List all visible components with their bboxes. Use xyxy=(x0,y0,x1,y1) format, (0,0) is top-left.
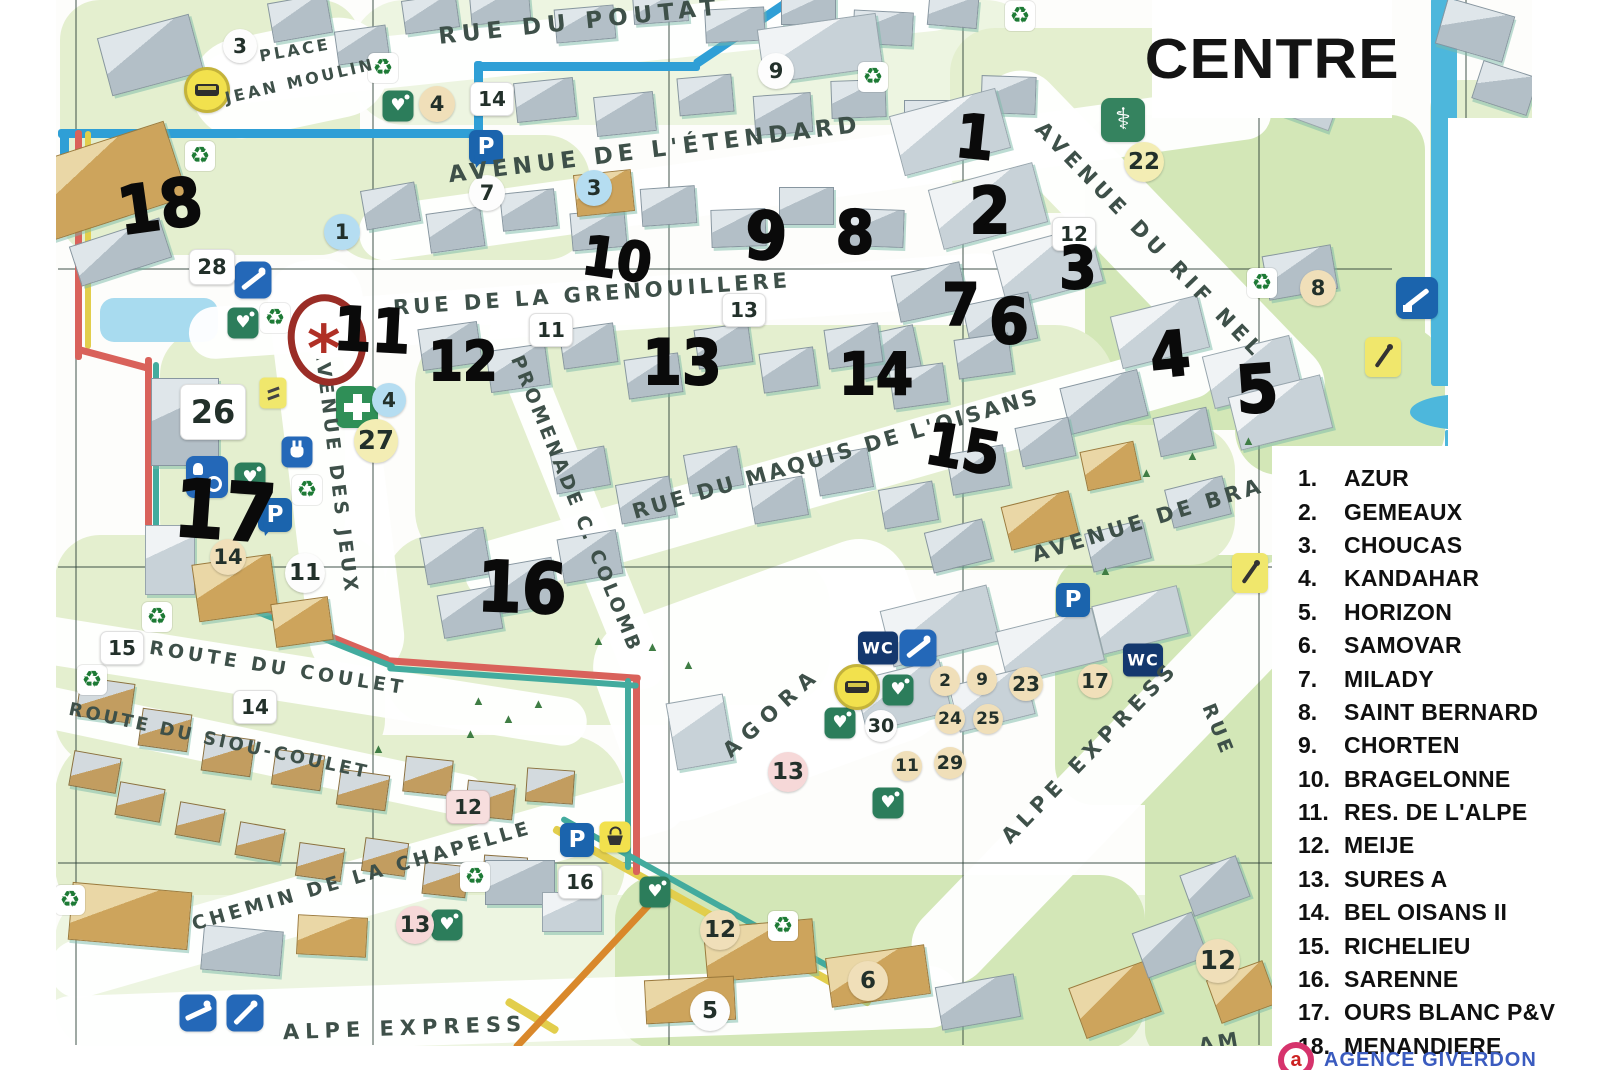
tree-icon: ▲ xyxy=(1140,466,1153,479)
building xyxy=(425,206,485,253)
legend-item: 4.KANDAHAR xyxy=(1298,562,1606,595)
building xyxy=(639,185,697,227)
number-badge: 11 xyxy=(892,751,922,781)
number-badge: 8 xyxy=(1300,270,1336,306)
page-title: CENTRE xyxy=(1145,26,1400,92)
recycling-icon: ♻ xyxy=(1247,268,1277,298)
number-badge: 16 xyxy=(558,865,602,899)
handwritten-number: 13 xyxy=(642,332,721,394)
tree-icon: ▲ xyxy=(502,712,515,725)
bus-icon xyxy=(834,664,880,710)
tree-icon: ▲ xyxy=(372,742,385,755)
agency-logo-icon: a xyxy=(1278,1042,1314,1070)
recycling-icon: ♻ xyxy=(142,602,172,632)
ski-school-icon xyxy=(1396,277,1438,319)
defibrillator-icon: ♥ xyxy=(228,308,259,339)
wc-icon: WC xyxy=(858,632,898,665)
number-badge: 4 xyxy=(419,86,455,122)
number-badge: 3 xyxy=(576,170,612,206)
legend-list: 1.AZUR2.GEMEAUX3.CHOUCAS4.KANDAHAR5.HORI… xyxy=(1298,462,1606,1063)
number-badge: 3 xyxy=(223,29,257,63)
tree-icon: ▲ xyxy=(1186,449,1199,462)
defibrillator-icon: ♥ xyxy=(825,708,856,739)
map-title-box: CENTRE xyxy=(1152,0,1392,118)
handwritten-number: 4 xyxy=(1147,322,1193,388)
defibrillator-icon: ♥ xyxy=(883,675,914,706)
number-badge: 27 xyxy=(354,419,398,463)
tree-icon: ▲ xyxy=(1099,564,1112,577)
recycling-icon: ♻ xyxy=(460,862,490,892)
legend-number: 5. xyxy=(1298,599,1344,626)
legend-name: RES. DE L'ALPE xyxy=(1344,799,1527,826)
legend-item: 16.SARENNE xyxy=(1298,963,1606,996)
recycling-icon: ♻ xyxy=(260,303,290,333)
building xyxy=(666,693,735,770)
number-badge: 6 xyxy=(848,961,888,1001)
legend-number: 11. xyxy=(1298,799,1344,826)
handwritten-number: 12 xyxy=(428,335,497,389)
legend-number: 10. xyxy=(1298,766,1344,793)
number-badge: 12 xyxy=(1196,939,1240,983)
legend-item: 17.OURS BLANC P&V xyxy=(1298,996,1606,1029)
handwritten-number: 2 xyxy=(970,180,1011,244)
legend-item: 1.AZUR xyxy=(1298,462,1606,495)
legend-item: 10.BRAGELONNE xyxy=(1298,763,1606,796)
ski-jump-icon xyxy=(227,995,264,1032)
grid-line xyxy=(372,0,374,1045)
info-icon xyxy=(260,378,287,409)
agency-branding: a AGENCE GIVERDON xyxy=(1278,1042,1537,1070)
legend-number: 4. xyxy=(1298,565,1344,592)
number-badge: 4 xyxy=(372,383,406,417)
tree-icon: ▲ xyxy=(464,727,477,740)
legend-number: 3. xyxy=(1298,532,1344,559)
parking-icon: P xyxy=(560,823,594,857)
building xyxy=(593,91,657,137)
defibrillator-icon: ♥ xyxy=(383,91,414,122)
shopping-basket-icon xyxy=(600,822,631,853)
number-badge: 13 xyxy=(396,906,434,944)
number-badge: 17 xyxy=(1078,664,1112,698)
medical-icon: ⚕ xyxy=(1101,98,1145,142)
number-badge: 22 xyxy=(1124,142,1164,182)
recycling-icon: ♻ xyxy=(292,475,322,505)
number-badge: 5 xyxy=(690,991,730,1031)
waterslide-icon xyxy=(900,630,937,667)
recycling-icon: ♻ xyxy=(768,911,798,941)
legend-number: 6. xyxy=(1298,632,1344,659)
defibrillator-icon: ♥ xyxy=(432,910,463,941)
legend-item: 13.SURES A xyxy=(1298,863,1606,896)
handwritten-number: 7 xyxy=(942,276,979,334)
legend-name: SURES A xyxy=(1344,866,1448,893)
recycling-icon: ♻ xyxy=(1005,1,1035,31)
legend-name: MEIJE xyxy=(1344,832,1415,859)
legend-item: 6.SAMOVAR xyxy=(1298,629,1606,662)
recycling-icon: ♻ xyxy=(77,665,107,695)
number-badge: 15 xyxy=(100,631,144,665)
parking-icon: P xyxy=(1056,583,1090,617)
handwritten-number: 16 xyxy=(476,551,568,624)
resort-map: ▲▲▲▲▲▲▲▲▲▲▲▲ ♻♻♻♻♻♻♻♻♻♻♻♻PPPPWCWC♥♥♥♥♥♥♥… xyxy=(0,0,1606,1070)
building xyxy=(676,74,734,117)
recycling-icon: ♻ xyxy=(55,885,85,915)
tree-icon: ▲ xyxy=(682,658,695,671)
tree-icon: ▲ xyxy=(592,634,605,647)
handwritten-number: 18 xyxy=(114,168,207,245)
building xyxy=(513,77,577,123)
legend-name: AZUR xyxy=(1344,465,1409,492)
route-line xyxy=(74,345,149,371)
legend-name: OURS BLANC P&V xyxy=(1344,999,1555,1026)
tree-icon: ▲ xyxy=(1242,434,1255,447)
legend-name: SAMOVAR xyxy=(1344,632,1462,659)
sled-icon xyxy=(180,995,217,1032)
legend-name: MILADY xyxy=(1344,666,1434,693)
number-badge: 12 xyxy=(700,910,740,950)
legend-name: SAINT BERNARD xyxy=(1344,699,1538,726)
building xyxy=(402,756,454,797)
number-badge: 11 xyxy=(285,553,325,593)
defibrillator-icon: ♥ xyxy=(640,877,671,908)
legend-number: 13. xyxy=(1298,866,1344,893)
legend-name: SARENNE xyxy=(1344,966,1459,993)
legend-item: 2.GEMEAUX xyxy=(1298,495,1606,528)
number-badge: 9 xyxy=(758,53,794,89)
recycling-icon: ♻ xyxy=(858,62,888,92)
handwritten-number: 3 xyxy=(1059,239,1096,297)
legend-item: 15.RICHELIEU xyxy=(1298,929,1606,962)
handwritten-number: 8 xyxy=(836,203,874,263)
tree-icon: ▲ xyxy=(472,694,485,707)
legend-name: HORIZON xyxy=(1344,599,1452,626)
legend-number: 14. xyxy=(1298,899,1344,926)
legend-item: 8.SAINT BERNARD xyxy=(1298,696,1606,729)
number-badge: 1 xyxy=(324,214,360,250)
page-margin xyxy=(1532,0,1606,130)
agency-name: AGENCE GIVERDON xyxy=(1324,1049,1537,1070)
legend-item: 9.CHORTEN xyxy=(1298,729,1606,762)
legend-name: CHOUCAS xyxy=(1344,532,1462,559)
handwritten-number: 14 xyxy=(839,345,913,403)
handwritten-number: 1 xyxy=(953,106,997,170)
legend-number: 2. xyxy=(1298,499,1344,526)
building xyxy=(68,882,193,950)
legend-number: 17. xyxy=(1298,999,1344,1026)
legend-panel: 1.AZUR2.GEMEAUX3.CHOUCAS4.KANDAHAR5.HORI… xyxy=(1272,446,1606,1070)
legend-number: 7. xyxy=(1298,666,1344,693)
legend-name: BRAGELONNE xyxy=(1344,766,1511,793)
legend-name: RICHELIEU xyxy=(1344,933,1471,960)
tree-icon: ▲ xyxy=(532,697,545,710)
number-badge: 13 xyxy=(768,752,808,792)
number-badge: 30 xyxy=(865,710,897,742)
legend-number: 1. xyxy=(1298,465,1344,492)
number-badge: 25 xyxy=(973,704,1003,734)
number-badge: 14 xyxy=(233,690,277,724)
number-badge: 26 xyxy=(180,384,246,440)
legend-name: GEMEAUX xyxy=(1344,499,1462,526)
skier-icon xyxy=(1232,553,1268,593)
legend-item: 5.HORIZON xyxy=(1298,596,1606,629)
building xyxy=(927,0,979,29)
waterslide-icon xyxy=(235,262,272,299)
handwritten-number: 6 xyxy=(989,291,1029,353)
building xyxy=(499,188,558,232)
grid-line xyxy=(1258,0,1260,1045)
number-badge: 12 xyxy=(446,790,490,824)
legend-name: CHORTEN xyxy=(1344,732,1460,759)
page-margin xyxy=(1448,118,1606,450)
building xyxy=(200,924,284,976)
legend-item: 12.MEIJE xyxy=(1298,829,1606,862)
handwritten-number: 5 xyxy=(1234,356,1281,425)
handwritten-number: 10 xyxy=(579,228,655,291)
page-margin xyxy=(0,0,56,1070)
handwritten-number: 17 xyxy=(171,469,279,556)
number-badge: 9 xyxy=(967,665,997,695)
skier-icon xyxy=(1365,337,1401,377)
legend-number: 12. xyxy=(1298,832,1344,859)
building xyxy=(270,596,334,648)
route-line xyxy=(476,62,700,71)
legend-number: 9. xyxy=(1298,732,1344,759)
number-badge: 11 xyxy=(529,313,573,347)
legend-number: 16. xyxy=(1298,966,1344,993)
legend-item: 14.BEL OISANS II xyxy=(1298,896,1606,929)
number-badge: 29 xyxy=(934,747,966,779)
building xyxy=(296,914,368,958)
legend-number: 15. xyxy=(1298,933,1344,960)
legend-item: 7.MILADY xyxy=(1298,662,1606,695)
number-badge: 14 xyxy=(470,82,514,116)
legend-item: 3.CHOUCAS xyxy=(1298,529,1606,562)
electricity-icon xyxy=(282,437,313,468)
number-badge: 24 xyxy=(935,704,965,734)
legend-item: 11.RES. DE L'ALPE xyxy=(1298,796,1606,829)
legend-name: BEL OISANS II xyxy=(1344,899,1507,926)
number-badge: 13 xyxy=(722,293,766,327)
handwritten-number: 15 xyxy=(921,414,1004,484)
legend-number: 8. xyxy=(1298,699,1344,726)
building xyxy=(525,767,575,804)
number-badge: 28 xyxy=(189,249,235,285)
handwritten-number: 11 xyxy=(332,299,412,363)
building xyxy=(758,346,818,393)
number-badge: 23 xyxy=(1009,667,1043,701)
defibrillator-icon: ♥ xyxy=(873,788,904,819)
tree-icon: ▲ xyxy=(646,640,659,653)
route-line xyxy=(633,677,640,875)
number-badge: 2 xyxy=(930,666,960,696)
handwritten-number: 9 xyxy=(743,203,790,272)
legend-name: KANDAHAR xyxy=(1344,565,1479,592)
